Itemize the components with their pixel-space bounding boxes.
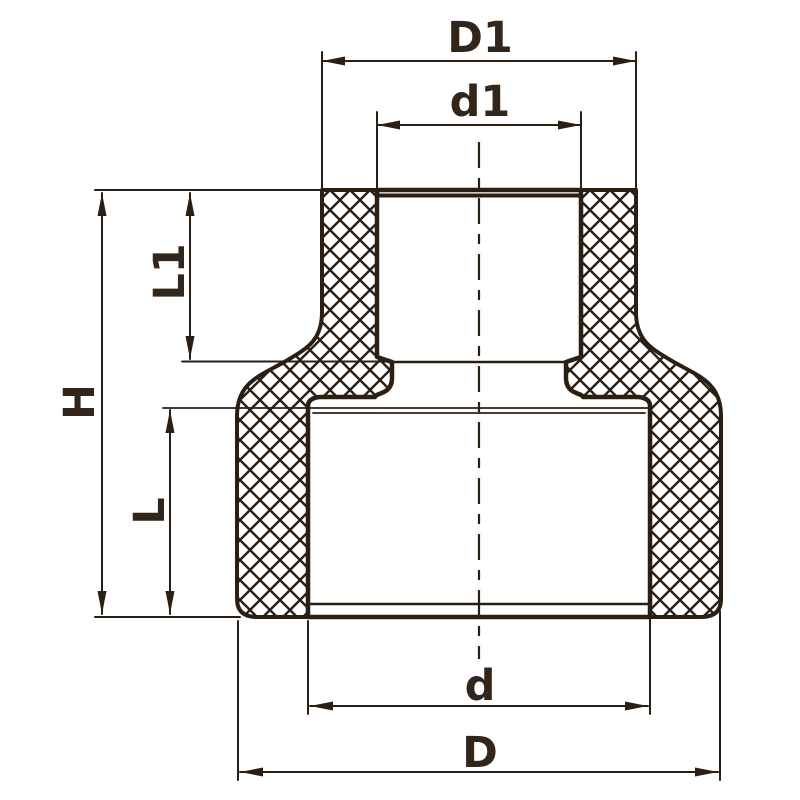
dimension-label-L1: L1 [145, 243, 195, 300]
arrowhead-L-top [166, 410, 175, 433]
arrowhead-D-right [695, 768, 718, 777]
arrowhead-d1-left [377, 121, 400, 130]
arrowhead-d-right [625, 702, 648, 711]
dimension-label-d: d [465, 661, 496, 711]
dimension-d1: d1 [377, 77, 581, 193]
dimension-label-H: H [55, 384, 105, 420]
arrowhead-L1-bottom [186, 336, 195, 359]
dimension-L1: L1 [145, 193, 195, 359]
dimension-label-D: D [462, 728, 498, 778]
arrowhead-L-bottom [166, 591, 175, 614]
arrowhead-D1-right [613, 57, 636, 66]
dimension-label-L: L [125, 497, 175, 524]
fitting-technical-drawing: D1 d1 L1 H L d [0, 0, 800, 800]
dimension-L: L [125, 410, 175, 614]
arrowhead-H-top [98, 193, 107, 216]
arrowhead-d-left [310, 702, 333, 711]
arrowhead-d1-right [558, 121, 581, 130]
arrowhead-D1-left [322, 57, 345, 66]
dimension-label-D1: D1 [447, 13, 513, 63]
arrowhead-H-bottom [98, 591, 107, 614]
drawing-canvas: D1 d1 L1 H L d [0, 0, 800, 800]
arrowhead-L1-top [186, 193, 195, 216]
arrowhead-D-left [240, 768, 263, 777]
dimension-label-d1: d1 [450, 77, 511, 127]
dimension-H: H [55, 193, 107, 614]
